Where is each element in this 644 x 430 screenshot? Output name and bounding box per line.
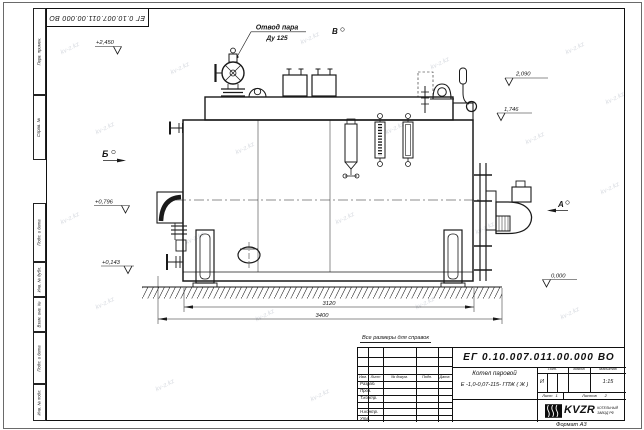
view-label-b: Б bbox=[102, 149, 109, 159]
doc-number: ЕГ 0.10.007.011.00.000 ВО bbox=[452, 348, 626, 367]
kvzr-logo-text: KVZR bbox=[564, 405, 595, 416]
titleblock-grid-line bbox=[590, 367, 591, 392]
svg-text:+0,796: +0,796 bbox=[95, 199, 114, 205]
steam-outlet-callout: Отвод пара Ду 125 bbox=[236, 24, 306, 59]
lifting-lug bbox=[430, 84, 454, 99]
callout-text-2: Ду 125 bbox=[265, 35, 288, 42]
titleblock-grid-line bbox=[537, 392, 626, 393]
steam-outlet-valve bbox=[216, 48, 246, 96]
titleblock-grid-line bbox=[547, 373, 548, 392]
titleblock-grid-line bbox=[358, 366, 452, 367]
sheet-cell: Лист1 bbox=[537, 392, 563, 399]
svg-text:1,746: 1,746 bbox=[504, 107, 519, 113]
titleblock-grid-line bbox=[358, 381, 452, 382]
titleblock-grid-line bbox=[358, 402, 452, 403]
safety-valve-2 bbox=[312, 69, 336, 96]
elevation-0796: +0,796 bbox=[94, 199, 130, 213]
titleblock-grid-line bbox=[563, 392, 564, 399]
svg-text:+2,450: +2,450 bbox=[96, 40, 115, 46]
elevation-1746: 1,746 bbox=[497, 107, 532, 121]
thermometer-pocket bbox=[460, 68, 477, 112]
elevation-2090: 2,090 bbox=[505, 72, 548, 86]
view-marker-b: Б bbox=[102, 149, 126, 162]
callout-text-1: Отвод пара bbox=[256, 24, 299, 32]
titleblock-grid-line bbox=[452, 399, 626, 400]
titleblock-grid-line bbox=[368, 348, 369, 422]
logo-caption: КОТЕЛЬНЫЙ ЗАВОД РФ bbox=[597, 406, 618, 414]
level-gauge-column bbox=[375, 114, 385, 167]
row-utv: Утв. bbox=[358, 415, 385, 422]
separator-vessel bbox=[343, 119, 359, 178]
view-label-a: А bbox=[557, 200, 564, 209]
svg-text:0,000: 0,000 bbox=[551, 273, 566, 279]
col-list: Лист bbox=[368, 374, 383, 381]
col-data: Дата bbox=[438, 374, 451, 381]
support-right bbox=[441, 230, 465, 287]
titleblock-grid-line bbox=[416, 348, 417, 422]
title-block: ЕГ 0.10.007.011.00.000 ВО Котел паровой … bbox=[357, 347, 625, 421]
kvzr-logo-icon bbox=[545, 404, 562, 418]
dim-inner: 3120 bbox=[323, 301, 337, 307]
lit-value: И bbox=[537, 373, 547, 392]
col-podp: Подп. bbox=[416, 374, 438, 381]
product-designation: Е -1,0-0,07-115- ГПЖ ( Ж ) bbox=[452, 379, 537, 393]
drain-valve bbox=[167, 254, 183, 270]
ground-line bbox=[142, 287, 502, 299]
view-label-v: В bbox=[332, 27, 338, 36]
view-marker-a: А bbox=[547, 200, 569, 212]
titleblock-grid-line bbox=[438, 348, 439, 422]
pedestal-lug bbox=[249, 88, 266, 97]
titleblock-grid-line bbox=[358, 357, 452, 358]
col-doc: № докум. bbox=[383, 374, 416, 381]
titleblock-grid-line bbox=[358, 374, 452, 375]
titleblock-grid-line bbox=[568, 367, 569, 392]
dashed-hatch-opening bbox=[418, 72, 433, 113]
burner-assembly bbox=[486, 181, 532, 234]
elevation-0000: 0,000 bbox=[543, 273, 578, 287]
titleblock-grid-line bbox=[358, 395, 452, 396]
titleblock-grid-line bbox=[452, 348, 453, 422]
drawing-sheet: kv-z.kzkv-z.kzkv-z.kzkv-z.kzkv-z.kzkv-z.… bbox=[0, 0, 644, 430]
titleblock-grid-line bbox=[358, 408, 452, 409]
sheets-cell: Листов2 bbox=[563, 392, 626, 399]
svg-text:+0,143: +0,143 bbox=[102, 260, 121, 266]
safety-valve-1 bbox=[283, 69, 307, 96]
water-gauge-glass bbox=[403, 114, 413, 167]
format-label: Формат А3 bbox=[556, 422, 587, 428]
titleblock-grid-line bbox=[358, 388, 452, 389]
elevation-0143: +0,143 bbox=[101, 260, 134, 274]
manhole bbox=[238, 242, 260, 268]
dim-overall: 3400 bbox=[316, 313, 330, 319]
titleblock-grid-line bbox=[383, 348, 384, 422]
front-top-valve bbox=[170, 122, 183, 135]
support-left bbox=[193, 230, 217, 287]
scale-value: 1:15 bbox=[590, 373, 626, 392]
titleblock-grid-line bbox=[537, 367, 538, 422]
boiler-body bbox=[176, 97, 480, 281]
elevation-2450: +2,450 bbox=[95, 40, 122, 54]
titleblock-grid-line bbox=[537, 373, 626, 374]
titleblock-grid-line bbox=[358, 415, 452, 416]
view-marker-v: В bbox=[332, 27, 344, 36]
svg-text:2,090: 2,090 bbox=[515, 72, 531, 78]
rear-flange-column bbox=[474, 163, 492, 281]
titleblock-grid-line bbox=[557, 373, 558, 392]
titleblock-grid-line bbox=[452, 367, 626, 368]
col-izm: Изм. bbox=[358, 374, 368, 381]
manufacturer-logo: KVZR КОТЕЛЬНЫЙ ЗАВОД РФ bbox=[538, 400, 625, 421]
reference-note: Все размеры для справок bbox=[360, 335, 431, 343]
